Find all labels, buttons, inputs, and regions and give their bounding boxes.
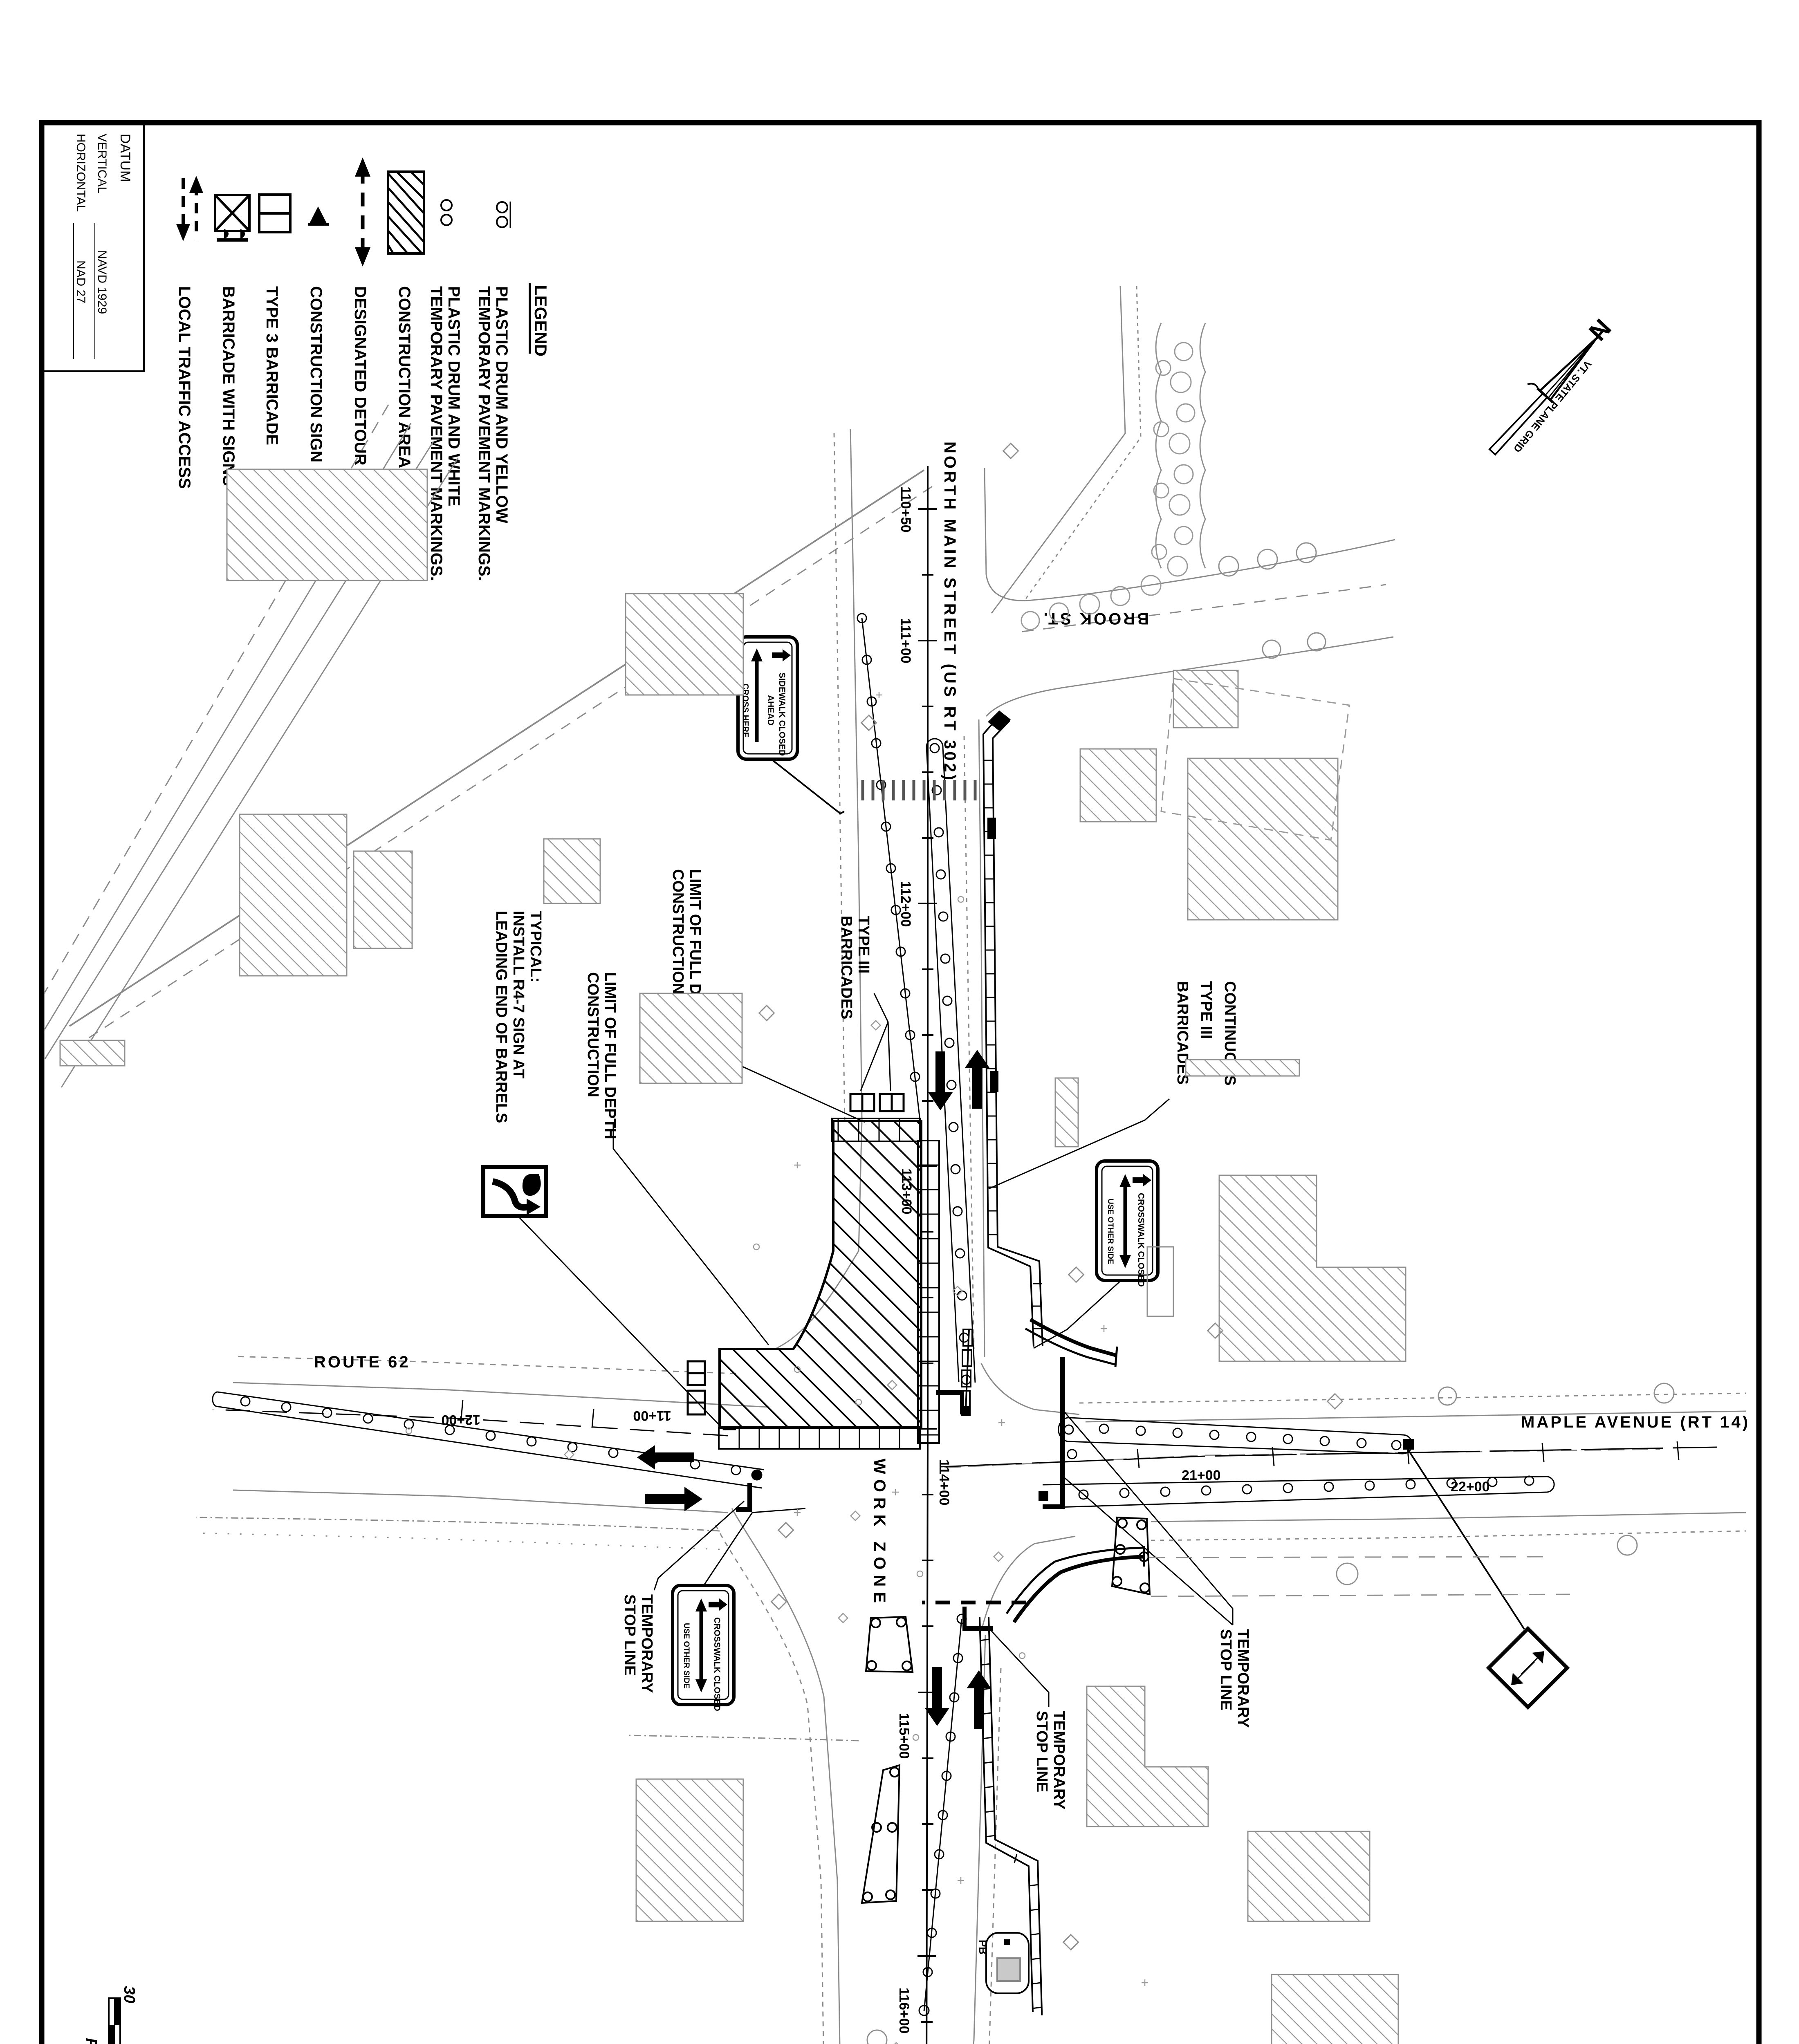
svg-text:DATUM: DATUM	[117, 134, 133, 182]
svg-text:21+00: 21+00	[1182, 1468, 1221, 1483]
svg-text:CONSTRUCTION: CONSTRUCTION	[669, 869, 686, 994]
svg-text:CONSTRUCTION: CONSTRUCTION	[584, 972, 601, 1097]
svg-text:TYPICAL:: TYPICAL:	[527, 911, 544, 982]
svg-text:SIDEWALK CLOSED: SIDEWALK CLOSED	[777, 672, 787, 756]
svg-text:30: 30	[121, 1986, 138, 2003]
svg-text:ROUTE 62: ROUTE 62	[314, 1353, 410, 1371]
svg-text:BARRICADE WITH SIGNS: BARRICADE WITH SIGNS	[220, 286, 238, 486]
svg-text:LEGEND: LEGEND	[531, 285, 550, 356]
svg-text:112+00: 112+00	[898, 881, 913, 927]
svg-text:LOCAL TRAFFIC ACCESS: LOCAL TRAFFIC ACCESS	[175, 286, 193, 489]
svg-text:TYPE III: TYPE III	[1198, 981, 1215, 1039]
svg-text:LIMIT OF FULL DEPTH: LIMIT OF FULL DEPTH	[601, 972, 619, 1139]
svg-text:NAD 27: NAD 27	[74, 260, 87, 303]
svg-text:CONSTRUCTION SIGN: CONSTRUCTION SIGN	[307, 286, 325, 462]
svg-text:PLASTIC DRUM AND YELLOW: PLASTIC DRUM AND YELLOW	[493, 286, 511, 523]
svg-text:12+00: 12+00	[442, 1412, 481, 1428]
svg-text:TEMPORARY: TEMPORARY	[1234, 1629, 1252, 1728]
svg-text:TYPE 3 BARRICADE: TYPE 3 BARRICADE	[263, 286, 281, 445]
svg-text:CONSTRUCTION AREA: CONSTRUCTION AREA	[395, 286, 413, 468]
svg-text:USE OTHER SIDE: USE OTHER SIDE	[682, 1623, 691, 1688]
svg-text:110+50: 110+50	[898, 486, 913, 533]
svg-text:MAPLE AVENUE (RT 14): MAPLE AVENUE (RT 14)	[1521, 1413, 1750, 1431]
svg-text:NAVD 1929: NAVD 1929	[95, 250, 109, 314]
svg-text:TEMPORARY: TEMPORARY	[1050, 1711, 1068, 1809]
svg-text:116+00: 116+00	[896, 1988, 912, 2034]
svg-text:113+00: 113+00	[899, 1168, 914, 1215]
svg-text:FEET: FEET	[82, 2038, 100, 2044]
svg-text:STOP LINE: STOP LINE	[1033, 1711, 1050, 1792]
svg-text:TEMPORARY PAVEMENT MARKINGS.: TEMPORARY PAVEMENT MARKINGS.	[475, 286, 493, 581]
svg-text:TYPE III: TYPE III	[855, 916, 872, 973]
svg-text:22+00: 22+00	[1451, 1479, 1490, 1495]
svg-text:STOP LINE: STOP LINE	[1217, 1629, 1234, 1710]
svg-text:INSTALL R4-7 SIGN AT: INSTALL R4-7 SIGN AT	[510, 911, 527, 1078]
svg-text:CROSSWALK CLOSED: CROSSWALK CLOSED	[1136, 1193, 1146, 1287]
svg-text:BARRICADES: BARRICADES	[838, 916, 855, 1019]
svg-text:LEADING END OF BARRELS: LEADING END OF BARRELS	[493, 911, 510, 1123]
svg-text:AHEAD: AHEAD	[766, 695, 775, 726]
svg-text:HORIZONTAL: HORIZONTAL	[74, 134, 87, 212]
svg-text:CROSSWALK CLOSED: CROSSWALK CLOSED	[712, 1617, 722, 1711]
svg-text:115+00: 115+00	[896, 1713, 912, 1759]
svg-text:PB: PB	[977, 1940, 989, 1954]
svg-text:114+00: 114+00	[936, 1459, 952, 1506]
svg-text:STOP LINE: STOP LINE	[621, 1594, 638, 1676]
svg-text:NORTH MAIN STREET (US RT 302): NORTH MAIN STREET (US RT 302)	[941, 442, 959, 782]
svg-text:VERTICAL: VERTICAL	[95, 134, 109, 193]
svg-text:111+00: 111+00	[898, 618, 913, 663]
svg-text:TEMPORARY: TEMPORARY	[638, 1594, 655, 1693]
svg-text:11+00: 11+00	[633, 1408, 671, 1423]
svg-text:TEMPORARY PAVEMENT MARKINGS.: TEMPORARY PAVEMENT MARKINGS.	[427, 286, 445, 581]
svg-text:USE OTHER SIDE: USE OTHER SIDE	[1106, 1199, 1115, 1264]
svg-text:WORK ZONE: WORK ZONE	[870, 1459, 888, 1608]
